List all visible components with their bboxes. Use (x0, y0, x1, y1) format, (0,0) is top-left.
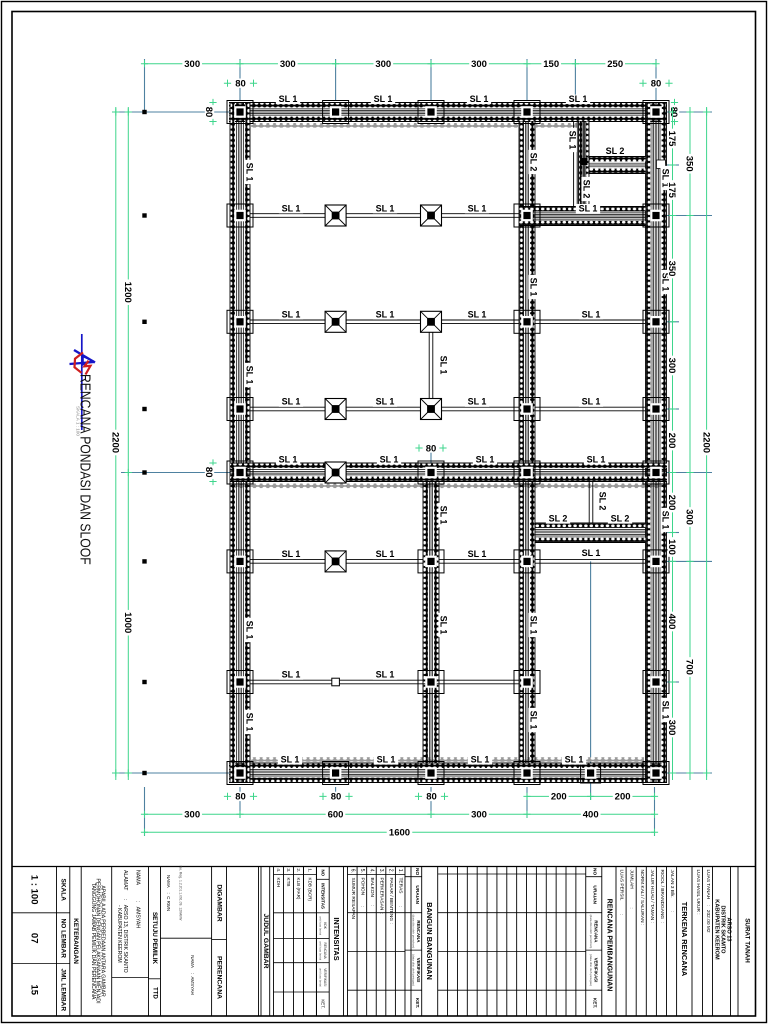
svg-text:RENCANA PEMBANGUNAN: RENCANA PEMBANGUNAN (605, 899, 612, 992)
svg-text:NO: NO (591, 868, 597, 875)
svg-text:SL 1: SL 1 (282, 670, 301, 680)
svg-text:SL 1: SL 1 (582, 397, 601, 407)
svg-text:RENCANA PONDASI DAN SLOOF: RENCANA PONDASI DAN SLOOF (77, 374, 93, 565)
svg-text:KLB (FAR): KLB (FAR) (296, 878, 301, 900)
svg-text:SL 1: SL 1 (376, 310, 395, 320)
svg-text:100: 100 (666, 539, 677, 555)
svg-text:SL 2: SL 2 (606, 146, 625, 156)
svg-text:SL 1: SL 1 (282, 203, 301, 213)
svg-text:6.: 6. (349, 869, 355, 873)
svg-text:TANGGUNG JAWAB PEMILIK DAN PER: TANGGUNG JAWAB PEMILIK DAN PERENCANA (90, 883, 96, 1000)
svg-text:PERENCANA: PERENCANA (216, 956, 223, 999)
svg-text:PAGAR / BENTENG :: PAGAR / BENTENG : (388, 878, 394, 924)
svg-text:KDB (BCR): KDB (BCR) (308, 878, 313, 902)
svg-text:LUAS TANAH : 202.00 M2: LUAS TANAH : 202.00 M2 (705, 870, 711, 933)
svg-text:KET.: KET. (591, 998, 597, 1008)
svg-text:SL 1: SL 1 (439, 616, 449, 635)
svg-text:(data diisi oleh petugas): (data diisi oleh petugas) (589, 954, 593, 986)
svg-text:2200: 2200 (110, 432, 121, 453)
svg-text:700: 700 (684, 659, 695, 675)
svg-text:INTENSITAS: INTENSITAS (332, 917, 341, 960)
svg-text:SKALA: SKALA (60, 879, 67, 902)
svg-text:SL 1: SL 1 (439, 356, 449, 375)
svg-text:SL 2: SL 2 (598, 492, 608, 511)
svg-text:JALAN 3 Blk. :: JALAN 3 Blk. : (669, 870, 675, 913)
svg-text:80: 80 (651, 79, 662, 90)
svg-text:300: 300 (471, 810, 487, 821)
svg-text:LUAS PERSIL :: LUAS PERSIL : (619, 870, 625, 916)
svg-text:SL 1: SL 1 (529, 278, 539, 297)
svg-text:SL 1: SL 1 (376, 397, 395, 407)
svg-text:- KABUPATEN KEEROM: - KABUPATEN KEEROM (116, 905, 122, 963)
svg-text:250: 250 (607, 59, 623, 70)
svg-text:LUAS HASIL UKUR :: LUAS HASIL UKUR : (695, 870, 701, 915)
svg-text:DISTRIK SKAMTO: DISTRIK SKAMTO (720, 905, 726, 954)
svg-text:SL 2: SL 2 (582, 180, 592, 199)
svg-text:1200: 1200 (122, 282, 133, 303)
svg-text:SL 1: SL 1 (282, 397, 301, 407)
svg-text:SL 2: SL 2 (611, 514, 630, 524)
svg-text:NORM.KALI / SALURAN :: NORM.KALI / SALURAN : (639, 870, 645, 926)
svg-text:80: 80 (331, 792, 342, 803)
svg-text:SL 1: SL 1 (376, 203, 395, 213)
svg-text:unit luas lantai: unit luas lantai (319, 916, 323, 936)
svg-text:KDK: KDK (323, 922, 327, 930)
svg-text:BALKON :: BALKON : (369, 878, 375, 907)
svg-text:BANGUN BANGUNAN: BANGUN BANGUNAN (425, 902, 434, 980)
svg-text:VERIFIKASI: VERIFIKASI (593, 958, 598, 983)
svg-text:300: 300 (184, 810, 200, 821)
svg-text:SETUJU PEMILIK: SETUJU PEMILIK (151, 912, 158, 965)
svg-text:4.: 4. (368, 869, 374, 873)
svg-text:350: 350 (684, 156, 695, 172)
svg-text:2200: 2200 (700, 432, 711, 453)
svg-text:RIOOL / BRANDGANG :: RIOOL / BRANDGANG : (659, 870, 665, 924)
svg-text:80: 80 (426, 443, 437, 454)
svg-text:SL 1: SL 1 (468, 397, 487, 407)
svg-text:SL 1: SL 1 (582, 548, 601, 558)
svg-text:300: 300 (666, 720, 677, 736)
svg-text:SL 1: SL 1 (468, 310, 487, 320)
svg-text:SL 1: SL 1 (282, 310, 301, 320)
svg-text:2.: 2. (388, 869, 394, 873)
svg-text:SL 1: SL 1 (245, 713, 255, 732)
svg-text:NAMA : AMSYAH: NAMA : AMSYAH (135, 870, 141, 928)
svg-text:80: 80 (235, 792, 246, 803)
svg-text:NO: NO (414, 868, 420, 875)
svg-text:SL 1: SL 1 (281, 755, 300, 765)
svg-text:KETERANGAN: KETERANGAN (72, 918, 79, 964)
svg-text:300: 300 (375, 59, 391, 70)
svg-text:SUMUR RESAPAN: SUMUR RESAPAN (350, 878, 356, 920)
svg-text:ALAMAT : ARSO 13, DISTR: ALAMAT : ARSO 13, DISTRIK SKANTO (122, 870, 128, 973)
svg-text:3.: 3. (286, 868, 291, 872)
svg-text:(data diisi oleh pemohon): (data diisi oleh pemohon) (589, 915, 593, 949)
svg-text:SL 1: SL 1 (279, 94, 298, 104)
svg-text:SL 1: SL 1 (282, 549, 301, 559)
svg-text:(data diisi oleh pemohon): (data diisi oleh pemohon) (411, 915, 415, 949)
svg-text:80: 80 (235, 79, 246, 90)
svg-text:350: 350 (666, 261, 677, 277)
svg-text:SL 1: SL 1 (376, 670, 395, 680)
svg-text:SL 1: SL 1 (587, 455, 606, 465)
svg-text:SL 2: SL 2 (529, 153, 539, 172)
svg-text:1.: 1. (308, 868, 313, 872)
svg-text:SL 1: SL 1 (439, 506, 449, 525)
svg-text:VERIFIKASI: VERIFIKASI (323, 968, 327, 986)
svg-text:300: 300 (471, 59, 487, 70)
svg-text:300: 300 (280, 59, 296, 70)
svg-text:PERKERASAN :: PERKERASAN : (379, 878, 385, 915)
svg-text:SL 1: SL 1 (245, 621, 255, 640)
svg-text:INTENSITAS: INTENSITAS (320, 883, 325, 909)
svg-text:ARSO 13: ARSO 13 (726, 918, 732, 942)
svg-text:SL 1: SL 1 (468, 203, 487, 213)
svg-text:KABUPATEN KEEROM: KABUPATEN KEEROM (714, 899, 720, 960)
svg-text:5.: 5. (359, 869, 365, 873)
svg-text:200: 200 (666, 495, 677, 511)
svg-text:TERKENA RENCANA: TERKENA RENCANA (680, 902, 689, 977)
svg-text:SL 1: SL 1 (661, 511, 671, 530)
svg-text:200: 200 (551, 792, 567, 803)
svg-text:SURAT TANAH: SURAT TANAH (743, 918, 750, 963)
svg-text:SL 2: SL 2 (549, 514, 568, 524)
svg-text:NO: NO (320, 870, 325, 877)
svg-text:400: 400 (666, 614, 677, 630)
svg-text:300: 300 (684, 509, 695, 525)
svg-text:3.: 3. (378, 869, 384, 873)
svg-text:2.: 2. (296, 868, 301, 872)
svg-text:SL 1: SL 1 (582, 310, 601, 320)
svg-text:175: 175 (666, 131, 677, 148)
svg-text:200: 200 (615, 792, 631, 803)
svg-text:TERAS :: TERAS : (398, 878, 404, 907)
svg-text:SL 1: SL 1 (468, 549, 487, 559)
svg-text:NAMA : AMSYAH: NAMA : AMSYAH (190, 955, 195, 994)
svg-text:175: 175 (666, 182, 677, 199)
svg-text:JUDUL GAMBAR: JUDUL GAMBAR (262, 913, 269, 968)
svg-text:KTB: KTB (286, 878, 291, 887)
svg-text:300: 300 (666, 358, 677, 374)
svg-text:SL 1: SL 1 (529, 711, 539, 730)
svg-text:unit luas lantai: unit luas lantai (319, 968, 323, 988)
svg-text:SL 1: SL 1 (661, 701, 671, 720)
svg-text:POHON :: POHON : (359, 878, 365, 908)
svg-text:NO LEMBAR: NO LEMBAR (60, 919, 67, 959)
svg-text:1.: 1. (397, 869, 403, 873)
svg-text:SL 1: SL 1 (374, 94, 393, 104)
svg-text:SL 1: SL 1 (376, 549, 395, 559)
svg-text:RENCANA: RENCANA (416, 920, 421, 943)
svg-text:SL 1: SL 1 (569, 94, 588, 104)
svg-text:KET.: KET. (320, 999, 325, 1008)
svg-text:URAIAN: URAIAN (591, 885, 597, 904)
svg-text:150: 150 (543, 59, 559, 70)
svg-text:SL 1: SL 1 (279, 455, 298, 465)
svg-text:URAIAN: URAIAN (414, 885, 420, 904)
svg-text:80: 80 (203, 467, 214, 478)
svg-text:unit luas lantai: unit luas lantai (319, 941, 323, 961)
svg-text:1 : 100: 1 : 100 (29, 875, 40, 905)
svg-text:KET.: KET. (414, 998, 420, 1008)
svg-text:1600: 1600 (389, 828, 410, 839)
svg-text:600: 600 (328, 810, 344, 821)
svg-text:RENCANA: RENCANA (323, 943, 327, 960)
svg-text:RENCANA: RENCANA (593, 920, 598, 943)
svg-text:4.: 4. (276, 868, 281, 872)
svg-text:07: 07 (29, 933, 40, 944)
svg-text:SL 1: SL 1 (471, 755, 490, 765)
svg-text:SL 1: SL 1 (377, 755, 396, 765)
svg-text:TTD: TTD (152, 987, 158, 999)
svg-text:No. Reg. 1.2.201.1.091.09. 12/: No. Reg. 1.2.201.1.091.09. 12/IAI/W (179, 866, 183, 921)
svg-text:SL 1: SL 1 (245, 163, 255, 182)
svg-text:SL 1: SL 1 (568, 131, 578, 150)
svg-text:SL 1: SL 1 (579, 203, 598, 213)
svg-text:80: 80 (203, 107, 214, 118)
svg-text:JUMLAH :: JUMLAH : (629, 870, 635, 909)
svg-text:SL 1: SL 1 (245, 366, 255, 385)
svg-text:300: 300 (184, 59, 200, 70)
svg-text:400: 400 (583, 810, 599, 821)
svg-text:JALUR HIJAU / TAMAN :: JALUR HIJAU / TAMAN : (649, 870, 655, 923)
svg-text:SL 1: SL 1 (529, 616, 539, 635)
svg-text:JML LEMBAR: JML LEMBAR (60, 969, 67, 1012)
svg-text:SL 1: SL 1 (470, 94, 489, 104)
svg-text:NAMA : C RWN: NAMA : C RWN (166, 875, 171, 911)
svg-text:DIGAMBAR: DIGAMBAR (216, 884, 223, 921)
svg-text:1000: 1000 (122, 612, 133, 633)
svg-text:SL 1: SL 1 (380, 455, 399, 465)
svg-text:SL 1: SL 1 (565, 755, 584, 765)
svg-text:15: 15 (29, 985, 40, 996)
svg-text:80: 80 (426, 792, 437, 803)
svg-text:VERIFIKASI: VERIFIKASI (416, 958, 421, 983)
svg-text:(data diisi oleh petugas): (data diisi oleh petugas) (411, 954, 415, 986)
svg-text:KDH: KDH (276, 878, 281, 888)
svg-text:200: 200 (666, 433, 677, 449)
svg-text:SL 1: SL 1 (476, 455, 495, 465)
